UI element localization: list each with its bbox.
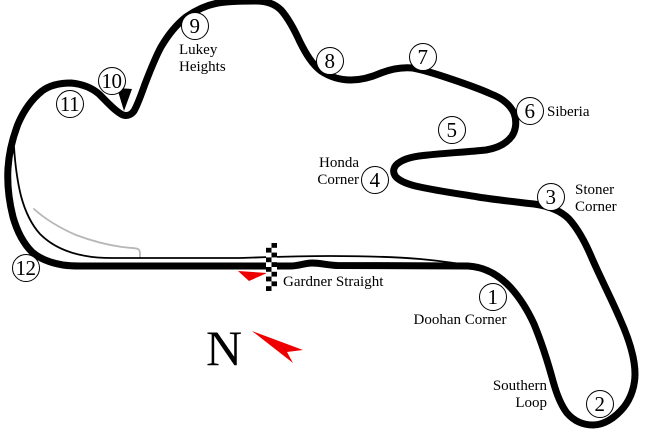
corner-marker: 5 — [438, 116, 466, 144]
compass-north-letter: N — [206, 322, 242, 374]
corner-label: Siberia — [547, 104, 590, 121]
corner-marker: 12 — [12, 254, 40, 282]
gardner-straight-label: Gardner Straight — [283, 274, 383, 291]
corner-label: SouthernLoop — [493, 378, 547, 412]
corner-marker: 2 — [586, 390, 614, 418]
corner-marker: 4 — [361, 166, 389, 194]
corner-marker: 6 — [516, 97, 544, 125]
compass-arrow-icon — [252, 331, 303, 363]
access-road-line — [34, 209, 140, 257]
corner-marker: 11 — [56, 90, 84, 118]
corner-label: LukeyHeights — [179, 42, 226, 76]
corner-marker: 8 — [316, 47, 344, 75]
corner-marker: 7 — [409, 43, 437, 71]
corner-marker: 3 — [537, 183, 565, 211]
corner-label: StonerCorner — [575, 182, 617, 216]
corner-marker: 1 — [479, 283, 507, 311]
direction-arrow-icon — [238, 271, 267, 281]
corner-marker: 10 — [98, 67, 126, 95]
corner-label: Doohan Corner — [414, 312, 507, 329]
pit-lane-line — [14, 147, 472, 266]
circuit-map: Gardner Straight N 123456789101112Doohan… — [0, 0, 650, 433]
corner-marker: 9 — [181, 12, 209, 40]
corner-label: HondaCorner — [317, 155, 359, 189]
start-finish-line — [266, 243, 277, 291]
